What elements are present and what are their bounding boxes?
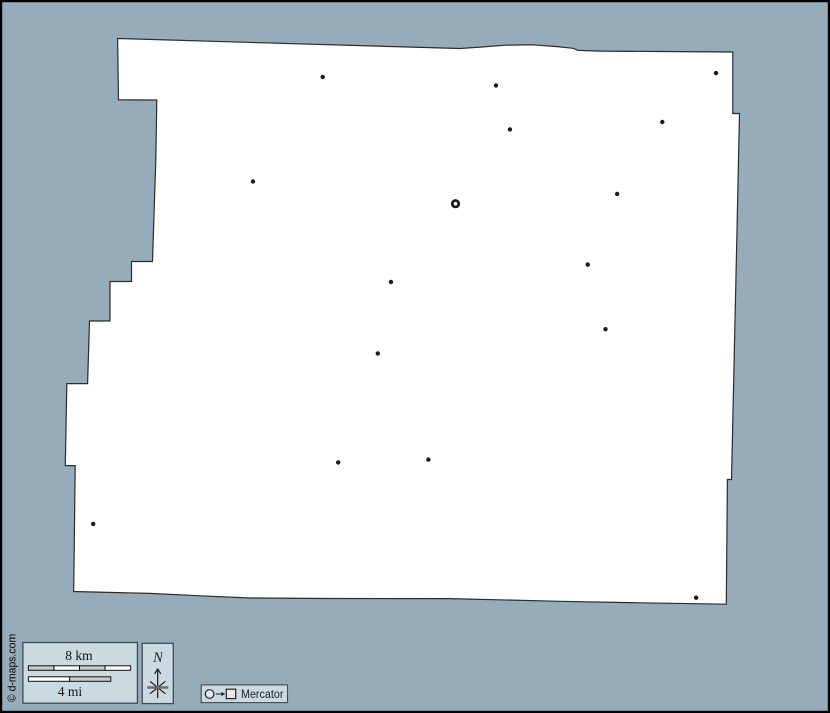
svg-text:8 km: 8 km (65, 648, 93, 663)
svg-text:Mercator: Mercator (241, 689, 284, 701)
svg-text:N: N (152, 650, 164, 666)
svg-text:© d-maps.com: © d-maps.com (6, 634, 18, 702)
svg-text:4 mi: 4 mi (58, 684, 83, 699)
